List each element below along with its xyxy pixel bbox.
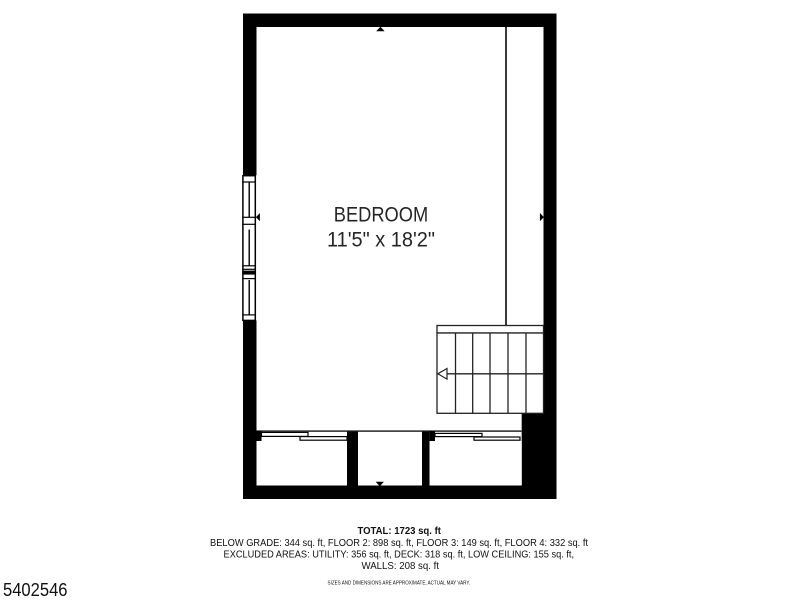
svg-text:TOTAL: 1723 sq. ft: TOTAL: 1723 sq. ft bbox=[357, 526, 441, 537]
svg-text:BEDROOM: BEDROOM bbox=[334, 203, 428, 227]
svg-text:5402546: 5402546 bbox=[3, 579, 68, 600]
svg-text:EXCLUDED AREAS: UTILITY: 356 s: EXCLUDED AREAS: UTILITY: 356 sq. ft, DEC… bbox=[224, 549, 575, 560]
svg-text:SIZES AND DIMENSIONS ARE APPRO: SIZES AND DIMENSIONS ARE APPROXIMATE, AC… bbox=[328, 580, 471, 586]
svg-text:WALLS: 208 sq. ft: WALLS: 208 sq. ft bbox=[361, 561, 439, 572]
svg-text:BELOW GRADE: 344 sq. ft, FLOOR: BELOW GRADE: 344 sq. ft, FLOOR 2: 898 sq… bbox=[210, 538, 588, 549]
svg-text:11'5" x 18'2": 11'5" x 18'2" bbox=[327, 227, 435, 251]
